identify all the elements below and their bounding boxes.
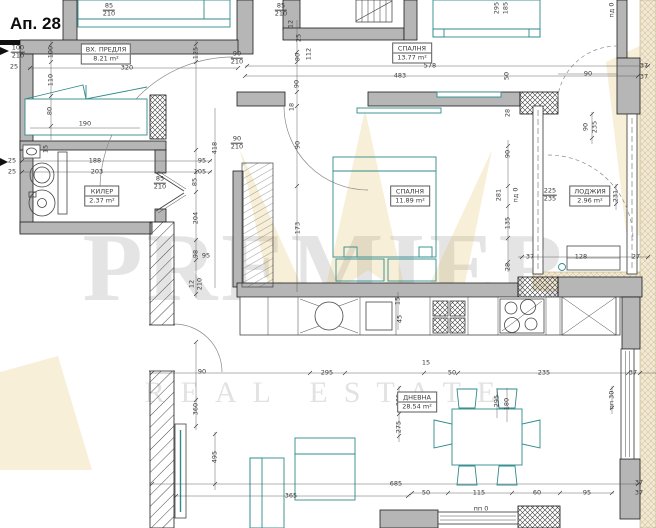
dining-table-set <box>434 389 540 485</box>
loggia-drain <box>559 264 566 271</box>
dimension-lines <box>20 20 656 496</box>
apartment-title: Ап. 28 <box>10 14 61 34</box>
sofa <box>250 438 355 528</box>
floor-plan-drawing <box>0 0 656 528</box>
folding-door <box>156 171 186 213</box>
kitchen-counter <box>240 297 620 335</box>
door-opening-gap <box>149 325 175 371</box>
bed-bedroom-top <box>433 0 540 37</box>
stairs-fragment <box>356 0 392 22</box>
floor-plan-page: PREMIER REAL ESTATE <box>0 0 656 528</box>
fridge <box>562 297 616 335</box>
tv-bedroom-middle <box>357 108 441 113</box>
neighbor-bed <box>78 0 230 27</box>
tv-bedroom-top <box>437 92 501 97</box>
walls <box>20 0 642 528</box>
entry-wardrobe <box>25 85 147 135</box>
stove <box>500 299 544 333</box>
loggia-bench <box>567 246 620 270</box>
living-door-arc <box>174 324 222 372</box>
tv-living <box>175 424 186 518</box>
bed-bedroom-middle <box>333 157 436 281</box>
level-markers <box>0 40 20 166</box>
bedroom-door-arc <box>284 106 368 190</box>
loggia-door-arc <box>548 155 633 240</box>
wardrobe-bedroom-middle <box>242 163 273 287</box>
furniture <box>25 0 566 528</box>
